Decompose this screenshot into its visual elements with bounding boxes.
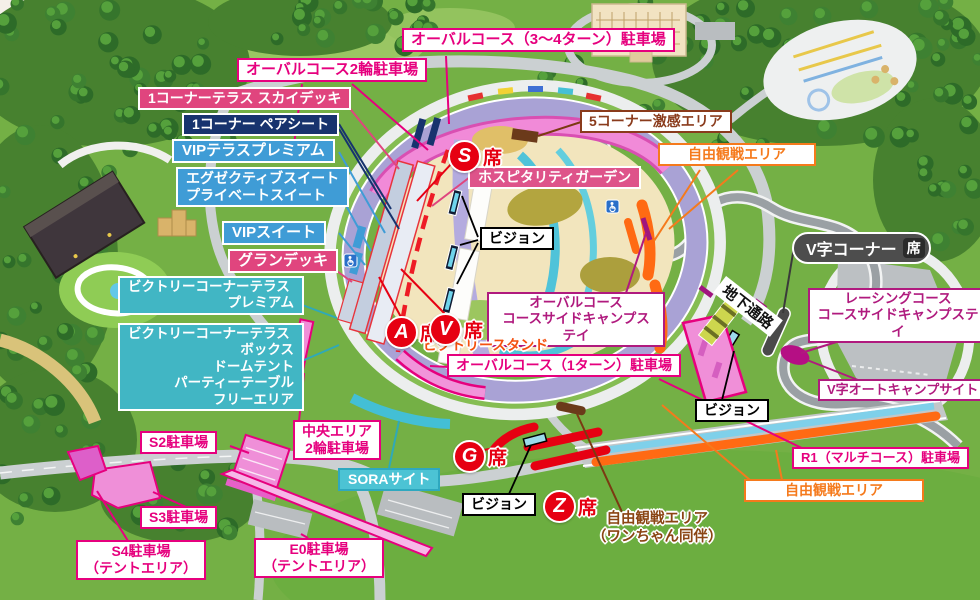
label-vip-terrace-premium: VIPテラスプレミアム	[172, 139, 335, 163]
label-oval-2rin-parking: オーバルコース2輪駐車場	[237, 58, 427, 82]
label-vision-center: ビジョン	[480, 227, 554, 250]
label-executive-suite: エグゼクティブスイート プライベートスイート	[176, 167, 349, 207]
label-free-view-area-se: 自由観戦エリア	[744, 479, 924, 502]
label-victory-terrace-premium: ビクトリーコーナーテラス プレミアム	[118, 276, 304, 315]
label-s3-parking: S3駐車場	[140, 506, 217, 529]
label-s4-parking: S4駐車場 （テントエリア）	[76, 540, 206, 580]
seat-z-badge: Z席	[543, 490, 597, 523]
label-racing-campstay: レーシングコース コースサイドキャンプステイ	[808, 288, 980, 343]
label-v-corner-seat: V字コーナー 席	[792, 232, 931, 264]
wheelchair-icon	[606, 200, 619, 213]
label-s2-parking: S2駐車場	[140, 431, 217, 454]
seat-s-badge: S席	[448, 140, 502, 173]
label-vip-suite: VIPスイート	[222, 221, 326, 245]
label-r1-parking: R1（マルチコース）駐車場	[792, 447, 969, 469]
label-victory-terrace-box: ビクトリーコーナーテラス ボックス ドームテント パーティーテーブル フリーエリ…	[118, 323, 304, 411]
circuit-facility-map: オーバルコース（3〜4ターン）駐車場 オーバルコース2輪駐車場 1コーナーテラス…	[0, 0, 980, 600]
label-oval-34turn-parking: オーバルコース（3〜4ターン）駐車場	[402, 28, 675, 52]
label-free-view-area-ne: 自由観戦エリア	[658, 143, 816, 166]
label-e0-parking: E0駐車場 （テントエリア）	[254, 538, 384, 578]
label-vision-south: ビジョン	[462, 493, 536, 516]
label-v-auto-camp: V字オートキャンプサイト	[818, 379, 980, 401]
wheelchair-icon	[344, 254, 357, 267]
label-corner1-pair-seat: 1コーナー ペアシート	[182, 113, 339, 136]
label-vision-east: ビジョン	[695, 399, 769, 422]
seat-v-badge: V席	[429, 313, 483, 346]
label-sora-site: SORAサイト	[338, 468, 440, 491]
seat-g-badge: G席	[453, 440, 507, 473]
label-grand-deck: グランデッキ	[228, 249, 338, 273]
label-free-view-dog-area: 自由観戦エリア （ワンちゃん同伴）	[592, 510, 723, 546]
label-corner5-area: 5コーナー激感エリア	[580, 110, 732, 133]
label-central-2rin-parking: 中央エリア 2輪駐車場	[293, 420, 381, 460]
label-corner1-sky-deck: 1コーナーテラス スカイデッキ	[138, 87, 351, 110]
label-oval-t1-parking: オーバルコース（1ターン）駐車場	[447, 354, 681, 377]
